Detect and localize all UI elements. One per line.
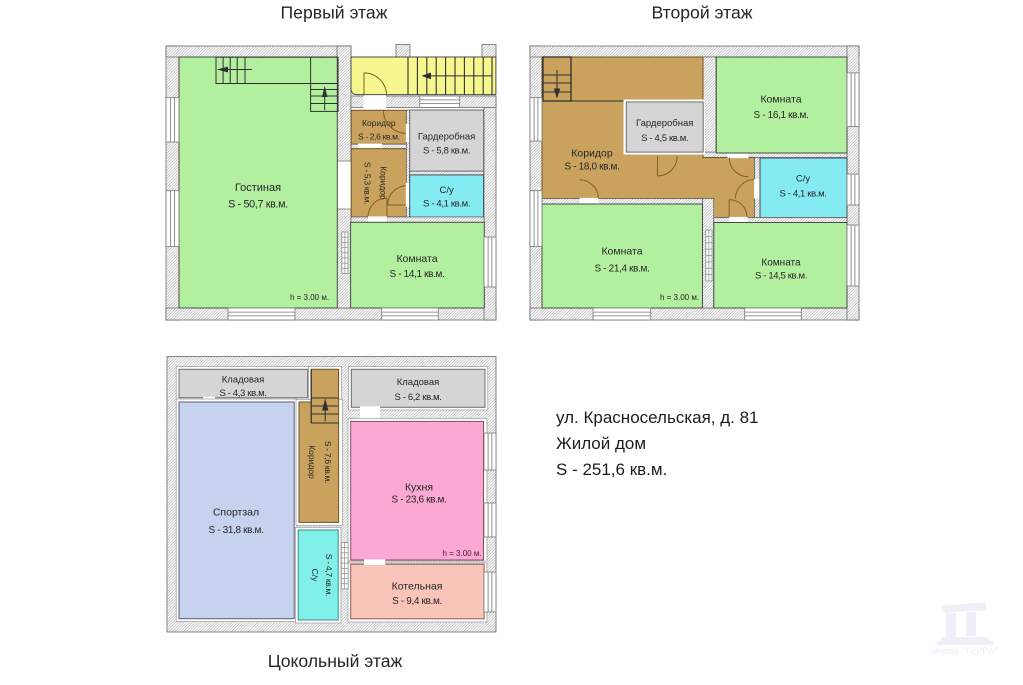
svg-text:S - 50,7 кв.м.: S - 50,7 кв.м. xyxy=(228,199,288,211)
svg-text:Гостиная: Гостиная xyxy=(235,182,281,194)
svg-text:Кухня: Кухня xyxy=(405,482,433,494)
svg-text:h = 3.00 м.: h = 3.00 м. xyxy=(442,549,481,558)
svg-text:S - 21,4 кв.м.: S - 21,4 кв.м. xyxy=(594,264,649,275)
svg-text:Кладовая: Кладовая xyxy=(222,375,265,386)
svg-text:S - 31,8 кв.м.: S - 31,8 кв.м. xyxy=(208,525,263,536)
svg-text:С/у: С/у xyxy=(796,174,811,185)
svg-text:С/у: С/у xyxy=(310,569,320,583)
svg-text:S - 5,3 кв.м.: S - 5,3 кв.м. xyxy=(363,162,373,204)
svg-text:S - 4,1 кв.м.: S - 4,1 кв.м. xyxy=(423,199,470,210)
svg-text:Жилой дом: Жилой дом xyxy=(556,434,646,453)
svg-text:h = 3.00 м.: h = 3.00 м. xyxy=(660,293,699,302)
svg-text:S - 4,7 кв.м.: S - 4,7 кв.м. xyxy=(324,554,334,596)
svg-text:Комната: Комната xyxy=(396,253,437,265)
svg-text:S - 4,1 кв.м.: S - 4,1 кв.м. xyxy=(779,189,826,200)
svg-text:S - 4,5 кв.м.: S - 4,5 кв.м. xyxy=(641,133,688,144)
svg-text:S - 16,1 кв.м.: S - 16,1 кв.м. xyxy=(753,110,808,121)
svg-text:S - 7,6 кв.м.: S - 7,6 кв.м. xyxy=(323,441,333,483)
svg-text:Коридор: Коридор xyxy=(571,148,613,160)
svg-text:Первый этаж: Первый этаж xyxy=(281,3,388,23)
svg-text:S - 14,5 кв.м.: S - 14,5 кв.м. xyxy=(755,271,807,282)
svg-text:Котельная: Котельная xyxy=(392,581,443,593)
svg-text:S - 23,6 кв.м.: S - 23,6 кв.м. xyxy=(391,495,446,506)
svg-text:Фирма "ТЕРРА": Фирма "ТЕРРА" xyxy=(931,646,997,656)
svg-text:S - 9,4 кв.м.: S - 9,4 кв.м. xyxy=(392,596,442,607)
svg-text:ул. Красносельская, д. 81: ул. Красносельская, д. 81 xyxy=(556,408,759,427)
svg-text:S - 6,2 кв.м.: S - 6,2 кв.м. xyxy=(394,392,441,403)
svg-text:S - 5,8 кв.м.: S - 5,8 кв.м. xyxy=(423,146,470,157)
svg-text:S - 14,1 кв.м.: S - 14,1 кв.м. xyxy=(389,269,444,280)
svg-text:S - 2,6 кв.м.: S - 2,6 кв.м. xyxy=(358,132,400,142)
svg-text:Комната: Комната xyxy=(761,258,801,269)
svg-text:С/у: С/у xyxy=(439,185,454,196)
svg-text:S - 18,0 кв.м.: S - 18,0 кв.м. xyxy=(564,162,619,173)
svg-text:Коридор: Коридор xyxy=(379,166,389,200)
svg-text:S - 4,3 кв.м.: S - 4,3 кв.м. xyxy=(219,388,266,399)
svg-text:h = 3.00 м.: h = 3.00 м. xyxy=(290,293,329,302)
svg-text:Кладовая: Кладовая xyxy=(397,377,440,388)
svg-text:Цокольный этаж: Цокольный этаж xyxy=(268,651,403,671)
svg-text:Коридор: Коридор xyxy=(307,445,317,479)
svg-text:Спортзал: Спортзал xyxy=(213,507,259,519)
svg-text:Комната: Комната xyxy=(601,246,642,258)
svg-text:Гардеробная: Гардеробная xyxy=(636,118,693,129)
svg-text:S - 251,6 кв.м.: S - 251,6 кв.м. xyxy=(556,460,667,479)
svg-text:Второй этаж: Второй этаж xyxy=(651,3,752,23)
svg-text:Гардеробная: Гардеробная xyxy=(418,132,475,143)
svg-text:Комната: Комната xyxy=(760,94,801,106)
